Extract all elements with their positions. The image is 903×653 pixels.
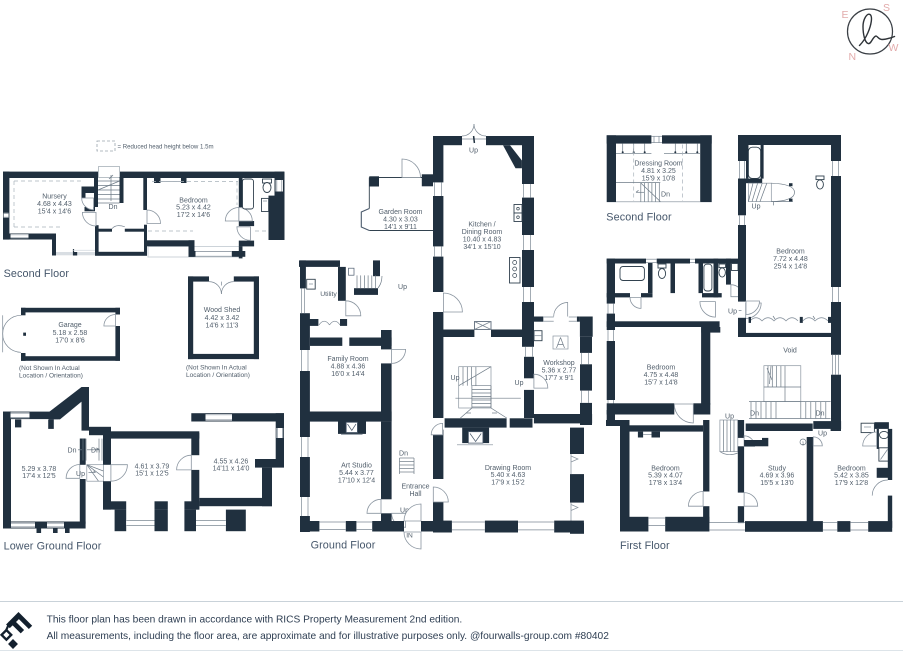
svg-text:Dn: Dn (399, 451, 408, 458)
svg-text:Up: Up (725, 414, 734, 421)
svg-text:Entrance: Entrance (401, 484, 429, 491)
svg-text:Kitchen /: Kitchen / (468, 222, 495, 229)
svg-text:14'6 x 11'3: 14'6 x 11'3 (206, 322, 239, 329)
svg-text:(Not Shown In Actual: (Not Shown In Actual (19, 365, 80, 372)
svg-text:4.42 x 3.42: 4.42 x 3.42 (205, 315, 240, 322)
svg-text:= Reduced head height below 1.: = Reduced head height below 1.5m (118, 144, 214, 151)
svg-text:Dn: Dn (816, 411, 825, 418)
svg-text:Dressing Room: Dressing Room (634, 160, 682, 167)
svg-text:16'0 x 14'4: 16'0 x 14'4 (331, 371, 365, 378)
svg-text:Location / Orientation): Location / Orientation) (186, 372, 250, 379)
svg-text:5.23 x 4.42: 5.23 x 4.42 (176, 205, 211, 212)
svg-text:15'1 x 12'5: 15'1 x 12'5 (135, 471, 169, 478)
svg-text:17'0 x 8'6: 17'0 x 8'6 (55, 337, 85, 344)
svg-text:4.55 x 4.26: 4.55 x 4.26 (214, 458, 249, 465)
svg-text:N: N (849, 51, 857, 63)
svg-text:4.88 x 4.36: 4.88 x 4.36 (331, 363, 366, 370)
svg-text:Art Studio: Art Studio (341, 463, 372, 470)
svg-text:(Not Shown In Actual: (Not Shown In Actual (186, 364, 247, 371)
svg-text:Garage: Garage (58, 322, 81, 329)
svg-text:Dn: Dn (68, 447, 77, 454)
svg-text:Dn: Dn (109, 204, 118, 211)
svg-text:34'1 x 15'10: 34'1 x 15'10 (463, 244, 500, 251)
svg-text:15'5 x 13'0: 15'5 x 13'0 (760, 480, 794, 487)
svg-text:First Floor: First Floor (620, 540, 670, 552)
svg-text:All measurements, including th: All measurements, including the floor ar… (47, 631, 610, 642)
svg-text:Family Room: Family Room (327, 356, 368, 363)
svg-text:Utility: Utility (320, 291, 337, 298)
svg-text:4.61 x 3.79: 4.61 x 3.79 (135, 463, 170, 470)
svg-text:4.69 x 3.96: 4.69 x 3.96 (760, 473, 795, 480)
svg-text:E: E (842, 9, 849, 21)
svg-text:Bedroom: Bedroom (647, 365, 676, 372)
svg-text:Second Floor: Second Floor (4, 268, 70, 280)
svg-text:15'9 x 10'8: 15'9 x 10'8 (642, 175, 676, 182)
svg-text:Ground Floor: Ground Floor (311, 540, 376, 552)
svg-text:4.30 x 3.03: 4.30 x 3.03 (383, 217, 418, 224)
svg-text:Up: Up (469, 148, 478, 155)
svg-text:5.40 x 4.63: 5.40 x 4.63 (491, 472, 526, 479)
svg-text:25'4 x 14'8: 25'4 x 14'8 (774, 264, 808, 271)
svg-text:14'1 x 9'11: 14'1 x 9'11 (384, 224, 417, 231)
svg-text:Bedroom: Bedroom (837, 465, 866, 472)
svg-text:Nursery: Nursery (42, 194, 67, 201)
svg-text:7.72 x 4.48: 7.72 x 4.48 (773, 256, 808, 263)
svg-text:Dn: Dn (661, 191, 670, 198)
svg-text:5.44 x 3.77: 5.44 x 3.77 (339, 470, 374, 477)
svg-text:Up: Up (818, 431, 827, 438)
svg-text:5.29 x 3.78: 5.29 x 3.78 (22, 466, 57, 473)
svg-text:14'11 x 14'0: 14'11 x 14'0 (213, 466, 250, 473)
svg-text:Up: Up (515, 380, 524, 387)
svg-text:Second Floor: Second Floor (606, 212, 672, 224)
svg-text:15'7 x 14'8: 15'7 x 14'8 (644, 379, 678, 386)
svg-text:5.42 x 3.85: 5.42 x 3.85 (834, 473, 869, 480)
svg-text:W: W (889, 42, 899, 54)
svg-text:Bedroom: Bedroom (179, 197, 208, 204)
svg-text:IN: IN (406, 533, 413, 540)
svg-text:S: S (883, 2, 890, 14)
svg-text:Drawing Room: Drawing Room (485, 465, 531, 472)
svg-text:Location / Orientation): Location / Orientation) (19, 372, 83, 379)
svg-text:4.81 x 3.25: 4.81 x 3.25 (641, 168, 676, 175)
svg-text:15'4 x 14'6: 15'4 x 14'6 (38, 209, 72, 216)
svg-text:Dining Room: Dining Room (462, 229, 503, 236)
svg-text:Bedroom: Bedroom (651, 465, 680, 472)
svg-text:Dn: Dn (750, 411, 759, 418)
svg-text:17'9 x 12'8: 17'9 x 12'8 (835, 480, 869, 487)
svg-text:5.18 x 2.58: 5.18 x 2.58 (53, 330, 88, 337)
svg-text:17'9 x 15'2: 17'9 x 15'2 (491, 480, 525, 487)
svg-text:This floor plan has been drawn: This floor plan has been drawn in accord… (47, 615, 463, 626)
svg-text:17'7 x 9'1: 17'7 x 9'1 (544, 375, 574, 382)
svg-text:17'10 x 12'4: 17'10 x 12'4 (338, 478, 375, 485)
svg-text:Up: Up (76, 471, 85, 478)
svg-text:17'8 x 13'4: 17'8 x 13'4 (649, 480, 683, 487)
svg-text:Up: Up (728, 309, 737, 316)
svg-text:Void: Void (783, 347, 797, 354)
svg-text:Garden Room: Garden Room (379, 209, 423, 216)
svg-text:Wood Shed: Wood Shed (204, 307, 241, 314)
svg-text:5.36 x 2.77: 5.36 x 2.77 (542, 367, 577, 374)
svg-text:Up: Up (398, 284, 407, 291)
svg-text:4.75 x 4.48: 4.75 x 4.48 (644, 372, 679, 379)
svg-text:4.68 x 4.43: 4.68 x 4.43 (37, 201, 72, 208)
svg-text:17'2 x 14'6: 17'2 x 14'6 (177, 212, 211, 219)
svg-text:Study: Study (768, 465, 786, 472)
svg-text:Up: Up (752, 204, 761, 211)
svg-text:Workshop: Workshop (543, 360, 574, 367)
svg-text:Lower Ground Floor: Lower Ground Floor (4, 541, 102, 553)
svg-text:17'4 x 12'5: 17'4 x 12'5 (22, 473, 56, 480)
svg-text:Up: Up (451, 375, 460, 382)
svg-text:Dn: Dn (91, 447, 100, 454)
svg-text:Hall: Hall (409, 491, 422, 498)
svg-text:5.39 x 4.07: 5.39 x 4.07 (648, 473, 683, 480)
svg-text:Bedroom: Bedroom (776, 249, 805, 256)
svg-text:10.40 x 4.83: 10.40 x 4.83 (463, 237, 502, 244)
